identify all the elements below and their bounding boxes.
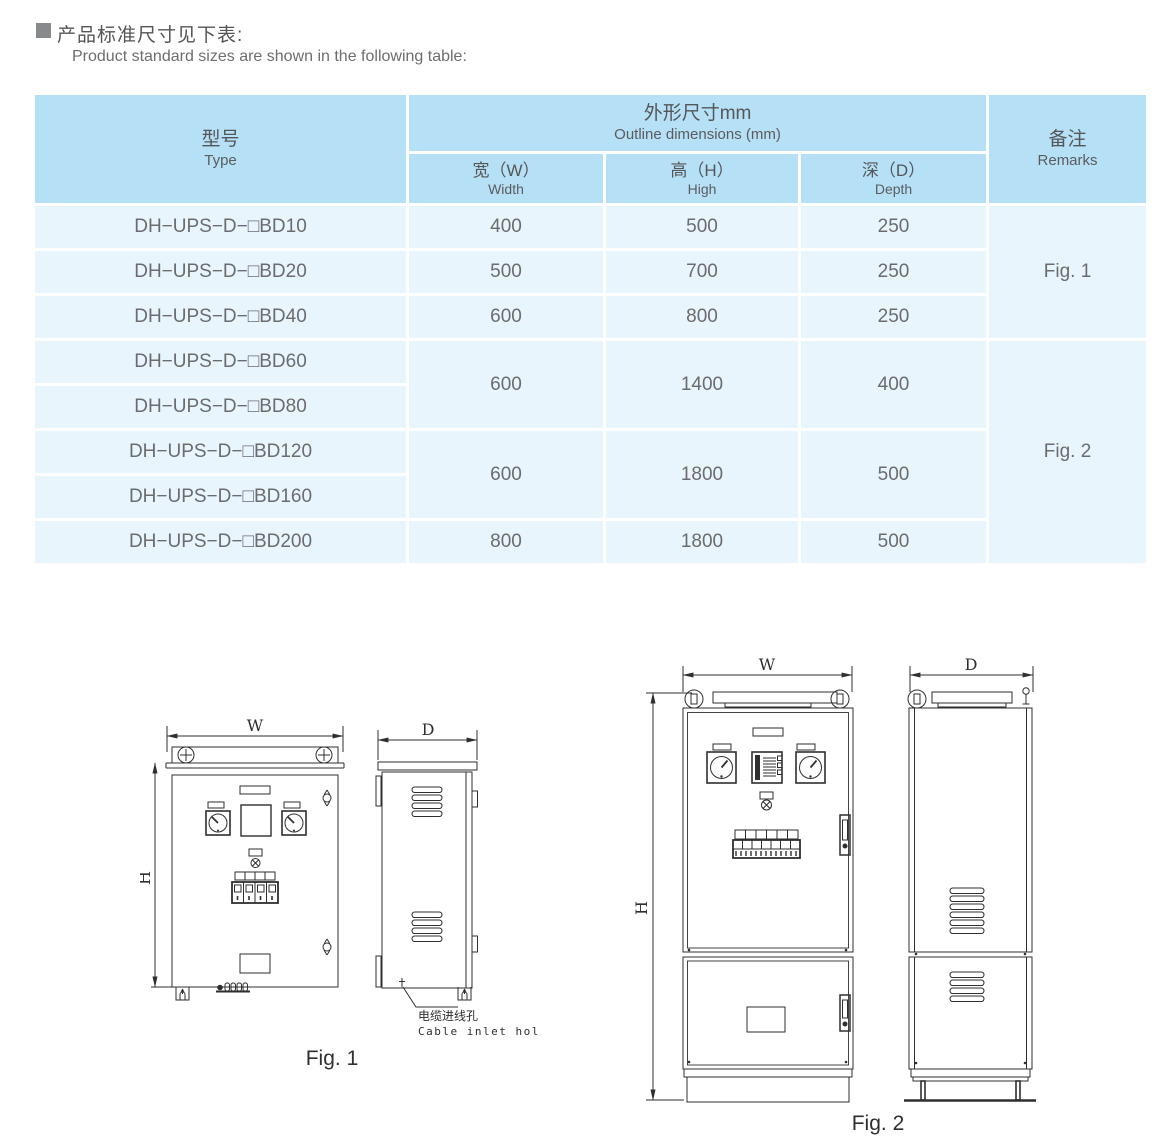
fig2-caption: Fig. 2	[852, 1112, 905, 1135]
fig2-front-view	[646, 666, 853, 1102]
type-cell: DH−UPS−D−□BD20	[35, 251, 406, 293]
section-title-row: 产品标准尺寸见下表:	[36, 20, 243, 47]
header-row-1: 型号 Type 外形尺寸mm Outline dimensions (mm) 备…	[35, 95, 1146, 151]
col-header-width: 宽（W） Width	[409, 154, 603, 203]
type-cell: DH−UPS−D−□BD40	[35, 296, 406, 338]
table-row: DH−UPS−D−□BD200 800 1800 500	[35, 521, 1146, 563]
type-cell: DH−UPS−D−□BD120	[35, 431, 406, 473]
fig1-drawing: W H D 电缆进线孔 Cable inlet hole Fig. 1	[140, 690, 540, 1080]
width-cell: 600	[409, 341, 603, 428]
width-cell: 600	[409, 296, 603, 338]
high-cell: 500	[606, 206, 798, 248]
type-cell: DH−UPS−D−□BD60	[35, 341, 406, 383]
fig1-side-view	[376, 730, 478, 1007]
col-header-type-en: Type	[35, 152, 406, 170]
fig1-cable-inlet-label-zh: 电缆进线孔	[418, 1009, 478, 1023]
col-header-dims-en: Outline dimensions (mm)	[409, 126, 986, 144]
width-cell: 400	[409, 206, 603, 248]
remarks-cell-fig1: Fig. 1	[989, 206, 1146, 338]
fig1-caption: Fig. 1	[306, 1047, 359, 1070]
table-row: DH−UPS−D−□BD60 600 1400 400 Fig. 2	[35, 341, 1146, 383]
high-cell: 800	[606, 296, 798, 338]
depth-cell: 250	[801, 251, 986, 293]
size-spec-table: 型号 Type 外形尺寸mm Outline dimensions (mm) 备…	[32, 92, 1149, 566]
fig2-side-view	[904, 666, 1036, 1101]
high-cell: 700	[606, 251, 798, 293]
fig2-dim-h-label: H	[632, 901, 651, 915]
fig2-dim-d-label: D	[965, 655, 978, 674]
col-header-high-en: High	[606, 181, 798, 197]
col-header-dims-zh: 外形尺寸mm	[409, 102, 986, 126]
width-cell: 800	[409, 521, 603, 563]
type-cell: DH−UPS−D−□BD10	[35, 206, 406, 248]
section-title-en: Product standard sizes are shown in the …	[72, 48, 467, 66]
col-header-depth: 深（D） Depth	[801, 154, 986, 203]
col-header-width-zh: 宽（W）	[409, 160, 603, 181]
type-cell: DH−UPS−D−□BD80	[35, 386, 406, 428]
section-title-zh: 产品标准尺寸见下表:	[57, 20, 243, 47]
col-header-width-en: Width	[409, 181, 603, 197]
remarks-cell-fig2: Fig. 2	[989, 341, 1146, 563]
fig1-dim-d-label: D	[422, 720, 435, 739]
col-header-depth-en: Depth	[801, 181, 986, 197]
col-header-depth-zh: 深（D）	[801, 160, 986, 181]
col-header-type: 型号 Type	[35, 95, 406, 203]
high-cell: 1400	[606, 341, 798, 428]
depth-cell: 500	[801, 431, 986, 518]
section-bullet-icon	[36, 23, 51, 38]
high-cell: 1800	[606, 431, 798, 518]
table-row: DH−UPS−D−□BD20 500 700 250	[35, 251, 1146, 293]
width-cell: 600	[409, 431, 603, 518]
col-header-remarks-en: Remarks	[989, 152, 1146, 170]
depth-cell: 250	[801, 206, 986, 248]
col-header-high: 高（H） High	[606, 154, 798, 203]
col-header-remarks-zh: 备注	[989, 128, 1146, 152]
col-header-type-zh: 型号	[35, 128, 406, 152]
depth-cell: 400	[801, 341, 986, 428]
table-row: DH−UPS−D−□BD10 400 500 250 Fig. 1	[35, 206, 1146, 248]
width-cell: 500	[409, 251, 603, 293]
col-header-remarks: 备注 Remarks	[989, 95, 1146, 203]
fig1-cable-inlet-label-en: Cable inlet hole	[418, 1025, 540, 1038]
type-cell: DH−UPS−D−□BD200	[35, 521, 406, 563]
table-row: DH−UPS−D−□BD40 600 800 250	[35, 296, 1146, 338]
table-row: DH−UPS−D−□BD120 600 1800 500	[35, 431, 1146, 473]
fig1-front-view	[151, 726, 471, 1000]
fig1-dim-h-label: H	[140, 871, 154, 885]
col-header-dims: 外形尺寸mm Outline dimensions (mm)	[409, 95, 986, 151]
depth-cell: 250	[801, 296, 986, 338]
fig1-dim-w-label: W	[247, 716, 264, 735]
depth-cell: 500	[801, 521, 986, 563]
high-cell: 1800	[606, 521, 798, 563]
type-cell: DH−UPS−D−□BD160	[35, 476, 406, 518]
fig2-dim-w-label: W	[759, 655, 776, 674]
fig2-drawing: W H D Fig. 2	[630, 650, 1080, 1148]
col-header-high-zh: 高（H）	[606, 160, 798, 181]
